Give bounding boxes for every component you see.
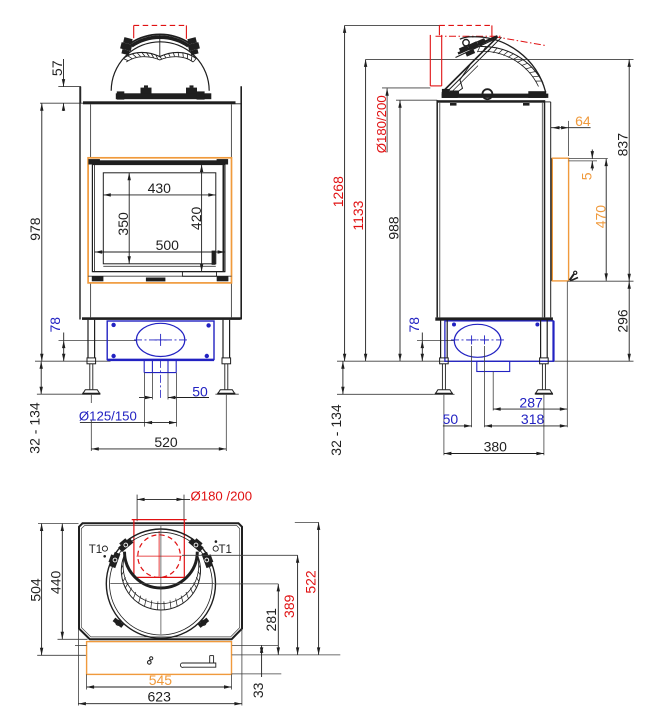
svg-text:504: 504 bbox=[27, 578, 43, 602]
svg-text:Ø125/150: Ø125/150 bbox=[79, 408, 137, 423]
svg-text:545: 545 bbox=[149, 672, 173, 688]
svg-text:837: 837 bbox=[614, 133, 630, 157]
svg-text:32 - 134: 32 - 134 bbox=[26, 402, 42, 454]
svg-text:350: 350 bbox=[115, 212, 131, 236]
svg-text:1268: 1268 bbox=[330, 176, 346, 207]
svg-text:Ø180 /200: Ø180 /200 bbox=[191, 488, 253, 503]
svg-text:T1: T1 bbox=[218, 544, 231, 556]
svg-text:50: 50 bbox=[443, 411, 459, 427]
svg-text:522: 522 bbox=[303, 570, 319, 594]
svg-text:32 - 134: 32 - 134 bbox=[328, 404, 344, 456]
svg-text:1133: 1133 bbox=[350, 200, 366, 230]
svg-text:50: 50 bbox=[192, 383, 208, 399]
svg-text:57: 57 bbox=[49, 60, 65, 76]
svg-text:Ø180/200: Ø180/200 bbox=[374, 95, 389, 153]
svg-text:64: 64 bbox=[575, 113, 591, 129]
svg-text:389: 389 bbox=[281, 594, 297, 618]
svg-text:380: 380 bbox=[484, 439, 508, 455]
svg-text:420: 420 bbox=[188, 207, 204, 231]
svg-text:440: 440 bbox=[47, 571, 63, 595]
svg-text:33: 33 bbox=[250, 682, 266, 698]
svg-text:T1: T1 bbox=[89, 544, 102, 556]
svg-text:287: 287 bbox=[519, 394, 543, 410]
svg-text:5: 5 bbox=[579, 172, 595, 180]
svg-text:430: 430 bbox=[148, 180, 172, 196]
svg-text:500: 500 bbox=[156, 237, 180, 253]
svg-text:988: 988 bbox=[386, 216, 402, 240]
svg-text:978: 978 bbox=[27, 217, 43, 241]
svg-text:318: 318 bbox=[521, 411, 545, 427]
svg-text:296: 296 bbox=[614, 309, 630, 333]
svg-text:78: 78 bbox=[406, 317, 422, 333]
svg-text:78: 78 bbox=[47, 317, 63, 333]
svg-text:520: 520 bbox=[154, 434, 178, 450]
svg-text:470: 470 bbox=[592, 205, 608, 229]
svg-text:623: 623 bbox=[148, 689, 172, 705]
svg-text:281: 281 bbox=[263, 608, 279, 632]
